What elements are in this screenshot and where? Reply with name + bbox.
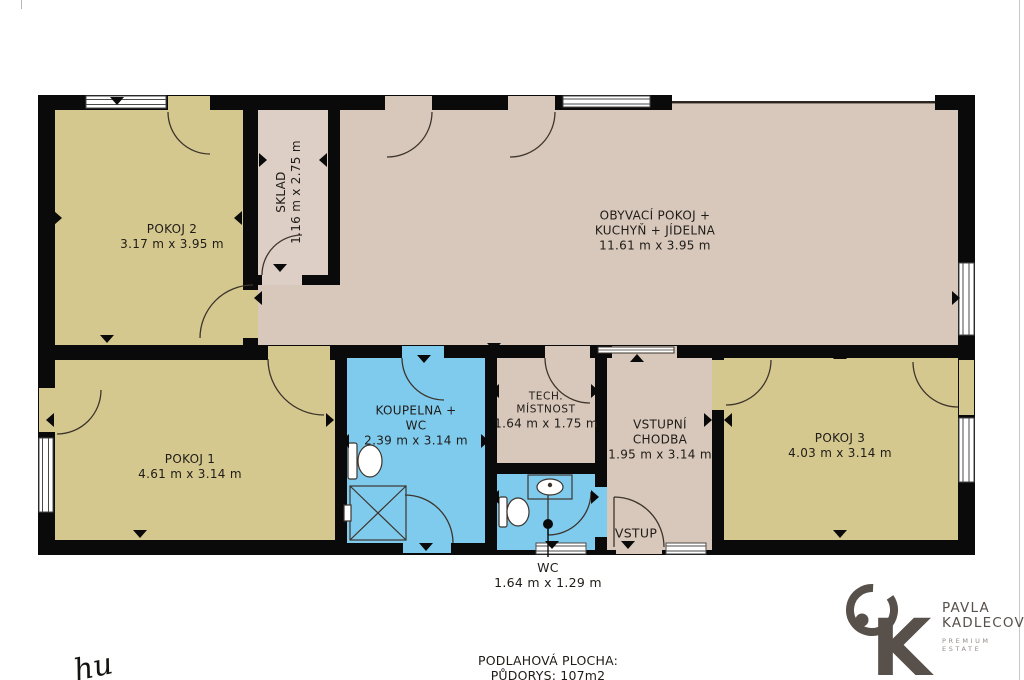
floor-area-label: PODLAHOVÁ PLOCHA: [478, 653, 618, 668]
recessed-wall [672, 95, 935, 110]
floor-area-value: PŮDORYS: 107m2 [478, 668, 618, 680]
rooms [55, 110, 958, 550]
room-name: POKOJ 1 [138, 452, 242, 467]
toilet-icon [499, 497, 529, 527]
room-dims: 3.17 m x 3.95 m [120, 237, 224, 252]
label-koupelna: KOUPELNA + WC 2.39 m x 3.14 m [364, 404, 468, 449]
room-dims: 11.61 m x 3.95 m [595, 239, 715, 254]
room-name: WC [494, 560, 602, 575]
brand-name-line2: KADLECOVÁ [942, 616, 1024, 631]
room-dims: 1.95 m x 3.14 m [608, 448, 712, 463]
room-name: TECH. [494, 391, 598, 404]
label-obyvaci: OBYVACÍ POKOJ + KUCHYŇ + JÍDELNA 11.61 m… [595, 209, 715, 254]
room-name: CHODBA [608, 433, 712, 448]
room-name: POKOJ 2 [120, 222, 224, 237]
room-name: SKLAD [274, 140, 289, 244]
room-name: VSTUPNÍ [608, 418, 712, 433]
image-edge-tick [21, 0, 22, 9]
label-wc: WC 1.64 m x 1.29 m [494, 560, 602, 590]
room-dims: 1.64 m x 1.75 m [494, 417, 598, 432]
brand-logo-icon: K [845, 580, 940, 680]
room-dims: 1.16 m x 2.75 m [289, 140, 304, 244]
brand-name-line1: PAVLA [942, 601, 1024, 616]
floor-area-note: PODLAHOVÁ PLOCHA: PŮDORYS: 107m2 [478, 653, 618, 680]
label-chodba: VSTUPNÍ CHODBA 1.95 m x 3.14 m [608, 418, 712, 463]
image-edge-line [1019, 0, 1020, 680]
room-pokoj1 [55, 360, 335, 540]
brand-tagline: PREMIUM ESTATE [942, 637, 1024, 653]
brand-text: PAVLA KADLECOVÁ PREMIUM ESTATE [942, 601, 1024, 653]
room-name: KUCHYŇ + JÍDELNA [595, 224, 715, 239]
room-dims: 4.61 m x 3.14 m [138, 467, 242, 482]
room-name: POKOJ 3 [788, 431, 892, 446]
room-name: OBYVACÍ POKOJ + [595, 209, 715, 224]
label-sklad: SKLAD 1.16 m x 2.75 m [274, 140, 304, 244]
room-obyvaci-ext [258, 285, 340, 345]
label-pokoj3: POKOJ 3 4.03 m x 3.14 m [788, 431, 892, 461]
label-vstup: VSTUP [615, 526, 657, 541]
label-pokoj1: POKOJ 1 4.61 m x 3.14 m [138, 452, 242, 482]
label-tech: TECH. MÍSTNOST 1.64 m x 1.75 m [494, 391, 598, 432]
room-name: KOUPELNA + [364, 404, 468, 419]
room-dims: 2.39 m x 3.14 m [364, 434, 468, 449]
label-pokoj2: POKOJ 2 3.17 m x 3.95 m [120, 222, 224, 252]
room-dims: 1.64 m x 1.29 m [494, 575, 602, 590]
room-name: MÍSTNOST [494, 404, 598, 417]
room-dims: 4.03 m x 3.14 m [788, 446, 892, 461]
brand-monogram: K [871, 604, 934, 680]
floorplan-page: POKOJ 2 3.17 m x 3.95 m SKLAD 1.16 m x 2… [0, 0, 1024, 680]
sliding-door [598, 347, 674, 353]
room-name: WC [364, 419, 468, 434]
